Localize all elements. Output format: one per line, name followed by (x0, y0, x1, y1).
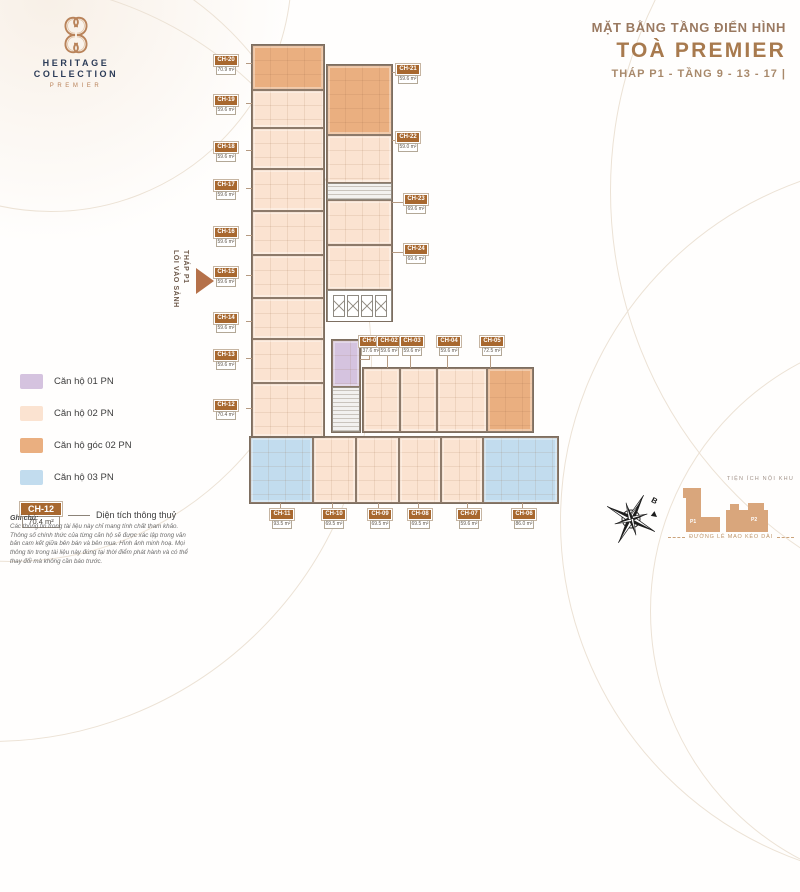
unit-area-tag: 59.6 m² (379, 347, 400, 356)
legend-swatch-2pn (20, 406, 43, 421)
unit-code-tag: CH-21 (396, 64, 419, 75)
legend-swatch-1pn (20, 374, 43, 389)
unit-ch-22 (327, 135, 392, 183)
road-dash (777, 537, 794, 538)
legend-swatch-2pn-goc (20, 438, 43, 453)
unit-label-ch-18: CH-1859.6 m² (214, 142, 238, 162)
unit-area-tag: 72.5 m² (482, 347, 503, 356)
elevator-icon (347, 295, 359, 317)
stair-lobby-core (327, 183, 392, 200)
unit-area-tag: 59.6 m² (216, 361, 237, 370)
unit-ch-14 (252, 298, 324, 339)
footnote: Ghi chú: Các thông tin trong tài liệu nà… (10, 515, 190, 566)
unit-label-ch-12: CH-1270.4 m² (214, 400, 238, 420)
unit-code-tag: CH-14 (214, 313, 237, 324)
unit-ch-07 (441, 437, 483, 503)
unit-ch-05 (487, 368, 533, 432)
unit-code-tag: CH-06 (512, 509, 535, 520)
unit-code-tag: CH-02 (377, 336, 400, 347)
unit-area-tag: 69.5 m² (370, 520, 391, 529)
legend-item-3pn: Căn hộ 03 PN (20, 470, 176, 485)
unit-area-tag: 59.6 m² (439, 347, 460, 356)
unit-code-tag: CH-16 (214, 227, 237, 238)
unit-area-tag: 70.4 m² (216, 411, 237, 420)
label-leader-line (246, 63, 252, 64)
label-leader-line (246, 235, 252, 236)
unit-area-tag: 59.6 m² (216, 278, 237, 287)
label-leader-line (246, 188, 252, 189)
unit-label-ch-06: CH-0686.0 m² (512, 509, 536, 529)
site-map-title: TIỆN ÍCH NỘI KHU (727, 476, 794, 482)
unit-area-tag: 59.6 m² (216, 106, 237, 115)
unit-ch-15 (252, 255, 324, 298)
unit-code-tag: CH-11 (270, 509, 293, 520)
unit-code-tag: CH-12 (214, 400, 237, 411)
unit-label-ch-05: CH-0572.5 m² (480, 336, 504, 356)
unit-label-ch-09: CH-0969.5 m² (368, 509, 392, 529)
unit-code-tag: CH-05 (480, 336, 503, 347)
unit-code-tag: CH-04 (437, 336, 460, 347)
unit-ch-19 (252, 90, 324, 128)
compass: B (600, 488, 662, 555)
label-leader-line (246, 358, 252, 359)
site-map: TIỆN ÍCH NỘI KHU P1 P2 ĐƯỜNG LÊ MAO KÉO … (664, 466, 798, 558)
unit-label-ch-02: CH-0259.6 m² (377, 336, 401, 356)
unit-label-ch-20: CH-2070.9 m² (214, 55, 238, 75)
unit-ch-08 (399, 437, 441, 503)
label-leader-line (246, 150, 252, 151)
unit-label-ch-14: CH-1459.6 m² (214, 313, 238, 333)
unit-label-ch-21: CH-2159.6 m² (396, 64, 420, 84)
compass-rose-icon: B (600, 488, 662, 550)
unit-label-ch-04: CH-0459.6 m² (437, 336, 461, 356)
unit-code-tag: CH-19 (214, 95, 237, 106)
building-p1: P1 (686, 488, 722, 532)
unit-area-tag: 69.5 m² (324, 520, 345, 529)
label-leader-line (246, 408, 252, 409)
compass-north-label: B (650, 495, 660, 506)
unit-code-tag: CH-08 (408, 509, 431, 520)
unit-label-ch-13: CH-1359.6 m² (214, 350, 238, 370)
unit-code-tag: CH-24 (404, 244, 427, 255)
legend: Căn hộ 01 PN Căn hộ 02 PN Căn hộ góc 02 … (20, 374, 176, 528)
label-leader-line (246, 321, 252, 322)
unit-label-ch-23: CH-2369.6 m² (404, 194, 428, 214)
unit-code-tag: CH-13 (214, 350, 237, 361)
unit-area-tag: 59.6 m² (216, 191, 237, 200)
unit-code-tag: CH-15 (214, 267, 237, 278)
unit-code-tag: CH-22 (396, 132, 419, 143)
unit-area-tag: 59.6 m² (216, 238, 237, 247)
unit-ch-02 (363, 368, 400, 432)
label-leader-line (246, 103, 252, 104)
legend-item-2pn-goc: Căn hộ góc 02 PN (20, 438, 176, 453)
footnote-body: Các thông tin trong tài liệu này chỉ man… (10, 523, 190, 566)
unit-label-ch-17: CH-1759.6 m² (214, 180, 238, 200)
legend-label: Căn hộ 02 PN (54, 408, 114, 419)
unit-area-tag: 70.9 m² (216, 66, 237, 75)
building-p1-label: P1 (690, 519, 696, 525)
unit-ch-12 (252, 383, 324, 437)
unit-area-tag: 69.6 m² (406, 255, 427, 264)
unit-area-tag: 59.6 m² (402, 347, 423, 356)
unit-area-tag: 69.5 m² (410, 520, 431, 529)
legend-swatch-3pn (20, 470, 43, 485)
unit-code-tag: CH-23 (404, 194, 427, 205)
unit-ch-13 (252, 339, 324, 383)
elevator-bank (327, 290, 392, 322)
unit-ch-17 (252, 169, 324, 211)
entrance-arrow-icon (196, 268, 214, 294)
legend-label: Căn hộ 01 PN (54, 376, 114, 387)
unit-label-ch-24: CH-2469.6 m² (404, 244, 428, 264)
legend-example-code: CH-12 (20, 502, 62, 516)
unit-code-tag: CH-07 (457, 509, 480, 520)
site-map-road: ĐƯỜNG LÊ MAO KÉO DÀI (664, 534, 798, 540)
unit-label-ch-10: CH-1069.5 m² (322, 509, 346, 529)
building-p2: P2 (726, 498, 768, 532)
unit-ch-20 (252, 45, 324, 90)
unit-ch-06 (483, 437, 558, 503)
unit-ch-18 (252, 128, 324, 169)
elevator-icon (361, 295, 373, 317)
unit-area-tag: 59.6 m² (216, 153, 237, 162)
unit-area-tag: 59.6 m² (216, 324, 237, 333)
unit-area-tag: 93.5 m² (272, 520, 293, 529)
unit-ch-16 (252, 211, 324, 255)
brochure-page: HERITAGE COLLECTION PREMIER MẶT BẰNG TẦN… (0, 0, 800, 565)
unit-label-ch-15: CH-1559.6 m² (214, 267, 238, 287)
unit-area-tag: 59.6 m² (459, 520, 480, 529)
unit-code-tag: CH-09 (368, 509, 391, 520)
legend-item-2pn: Căn hộ 02 PN (20, 406, 176, 421)
unit-ch-11 (250, 437, 313, 503)
unit-ch-03 (400, 368, 437, 432)
unit-code-tag: CH-10 (322, 509, 345, 520)
elevator-icon (375, 295, 387, 317)
entrance-line2: THÁP P1 (180, 250, 190, 328)
legend-item-1pn: Căn hộ 01 PN (20, 374, 176, 389)
unit-label-ch-16: CH-1659.6 m² (214, 227, 238, 247)
legend-label: Căn hộ 03 PN (54, 472, 114, 483)
unit-ch-23 (327, 200, 392, 245)
legend-label: Căn hộ góc 02 PN (54, 440, 132, 451)
unit-label-ch-07: CH-0759.6 m² (457, 509, 481, 529)
unit-ch-21 (327, 65, 392, 135)
unit-code-tag: CH-18 (214, 142, 237, 153)
elevator-icon (333, 295, 345, 317)
unit-ch-01 (332, 340, 360, 387)
unit-label-ch-11: CH-1193.5 m² (270, 509, 294, 529)
label-leader-line (360, 359, 370, 360)
unit-code-tag: CH-17 (214, 180, 237, 191)
unit-ch-10 (313, 437, 356, 503)
road-dash (668, 537, 685, 538)
unit-area-tag: 59.0 m² (398, 143, 419, 152)
entrance-label: LỐI VÀO SẢNH THÁP P1 (170, 250, 190, 328)
unit-area-tag: 86.0 m² (514, 520, 535, 529)
building-p2-label: P2 (751, 517, 757, 523)
road-label: ĐƯỜNG LÊ MAO KÉO DÀI (689, 534, 773, 540)
unit-code-tag: CH-03 (400, 336, 423, 347)
unit-area-tag: 59.6 m² (398, 75, 419, 84)
unit-area-tag: 69.6 m² (406, 205, 427, 214)
entrance-line1: LỐI VÀO SẢNH (170, 250, 180, 328)
unit-label-ch-03: CH-0359.6 m² (400, 336, 424, 356)
unit-label-ch-08: CH-0869.5 m² (408, 509, 432, 529)
footnote-title: Ghi chú: (10, 515, 190, 522)
unit-ch-09 (356, 437, 399, 503)
stair-core (332, 387, 360, 432)
unit-code-tag: CH-20 (214, 55, 237, 66)
unit-label-ch-22: CH-2259.0 m² (396, 132, 420, 152)
label-leader-line (246, 275, 252, 276)
unit-ch-24 (327, 245, 392, 290)
unit-label-ch-19: CH-1959.6 m² (214, 95, 238, 115)
unit-ch-04 (437, 368, 487, 432)
